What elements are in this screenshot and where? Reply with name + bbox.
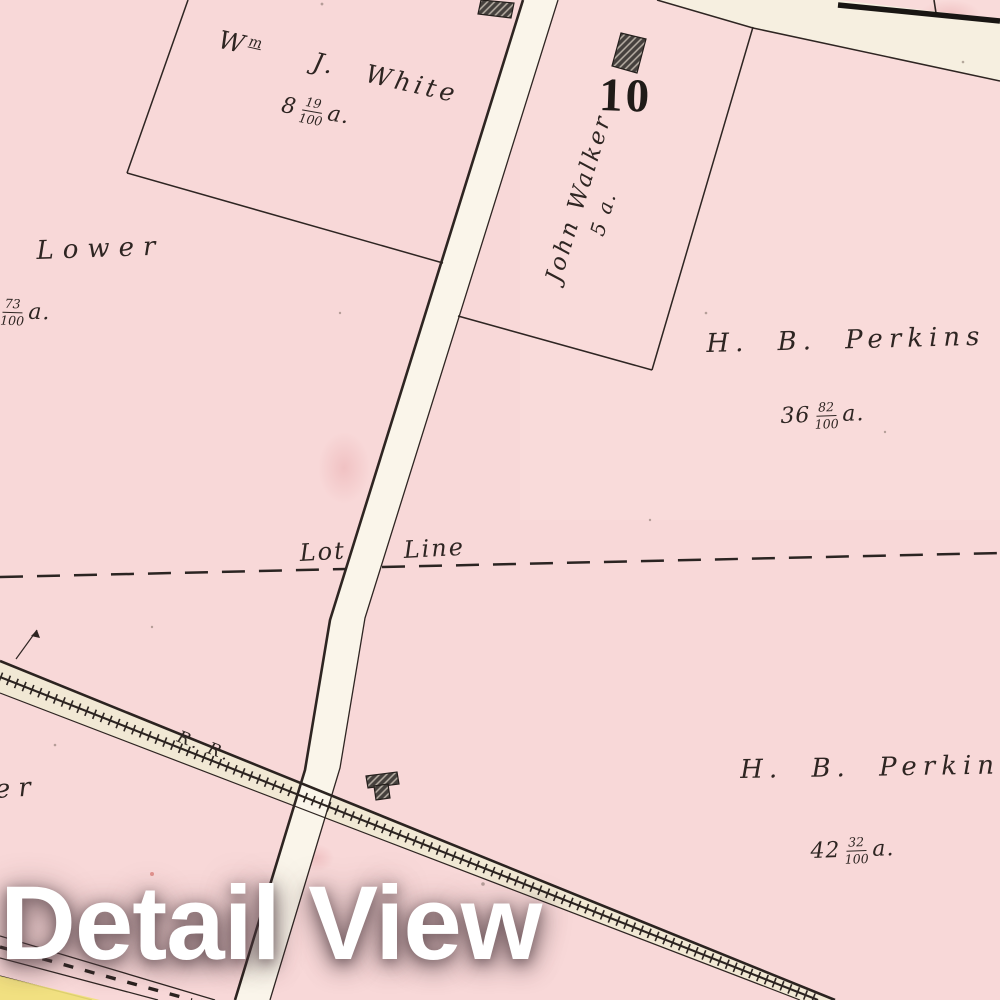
acre-num: 73: [2, 298, 22, 314]
parcel-acreage-hb-perkins-north: 36 82100 a.: [780, 400, 865, 432]
acre-whole: 42: [810, 839, 841, 864]
acre-den: 100: [0, 313, 24, 328]
acre-unit: a.: [326, 103, 352, 131]
acre-unit: a.: [872, 837, 895, 862]
parcel-acreage-hb-perkins-south: 42 32100 a.: [810, 835, 895, 867]
detail-view-title: Detail View: [0, 864, 541, 984]
acre-num: 32: [846, 836, 866, 852]
acre-unit: a.: [28, 301, 51, 326]
acre-whole: 8: [279, 94, 298, 120]
acre-unit: a.: [842, 402, 865, 427]
parcel-tint: [520, 0, 1000, 520]
acre-num: 82: [816, 401, 836, 417]
owner-prefix-sup: m: [247, 34, 264, 53]
acre-den: 100: [845, 851, 869, 866]
parcel-owner-lower-west-partial: er: [0, 773, 40, 805]
parcel-acreage-lower: 8 73100 a.: [0, 297, 51, 328]
paper-blotch: [318, 432, 370, 504]
owner-prefix: W: [216, 25, 251, 60]
parcel-owner-lower: Lower: [36, 233, 165, 266]
acre-whole: 36: [780, 404, 811, 429]
lot-line-label-left: Lot: [299, 538, 346, 567]
acre-den: 100: [815, 416, 839, 431]
lot-line-label-right: Line: [403, 534, 466, 564]
plat-map-detail-view: Wm J. White 8 19100 a. Lower 8 73100 a. …: [0, 0, 1000, 1000]
parcel-owner-hb-perkins-south: H. B. Perkins: [740, 751, 1000, 784]
